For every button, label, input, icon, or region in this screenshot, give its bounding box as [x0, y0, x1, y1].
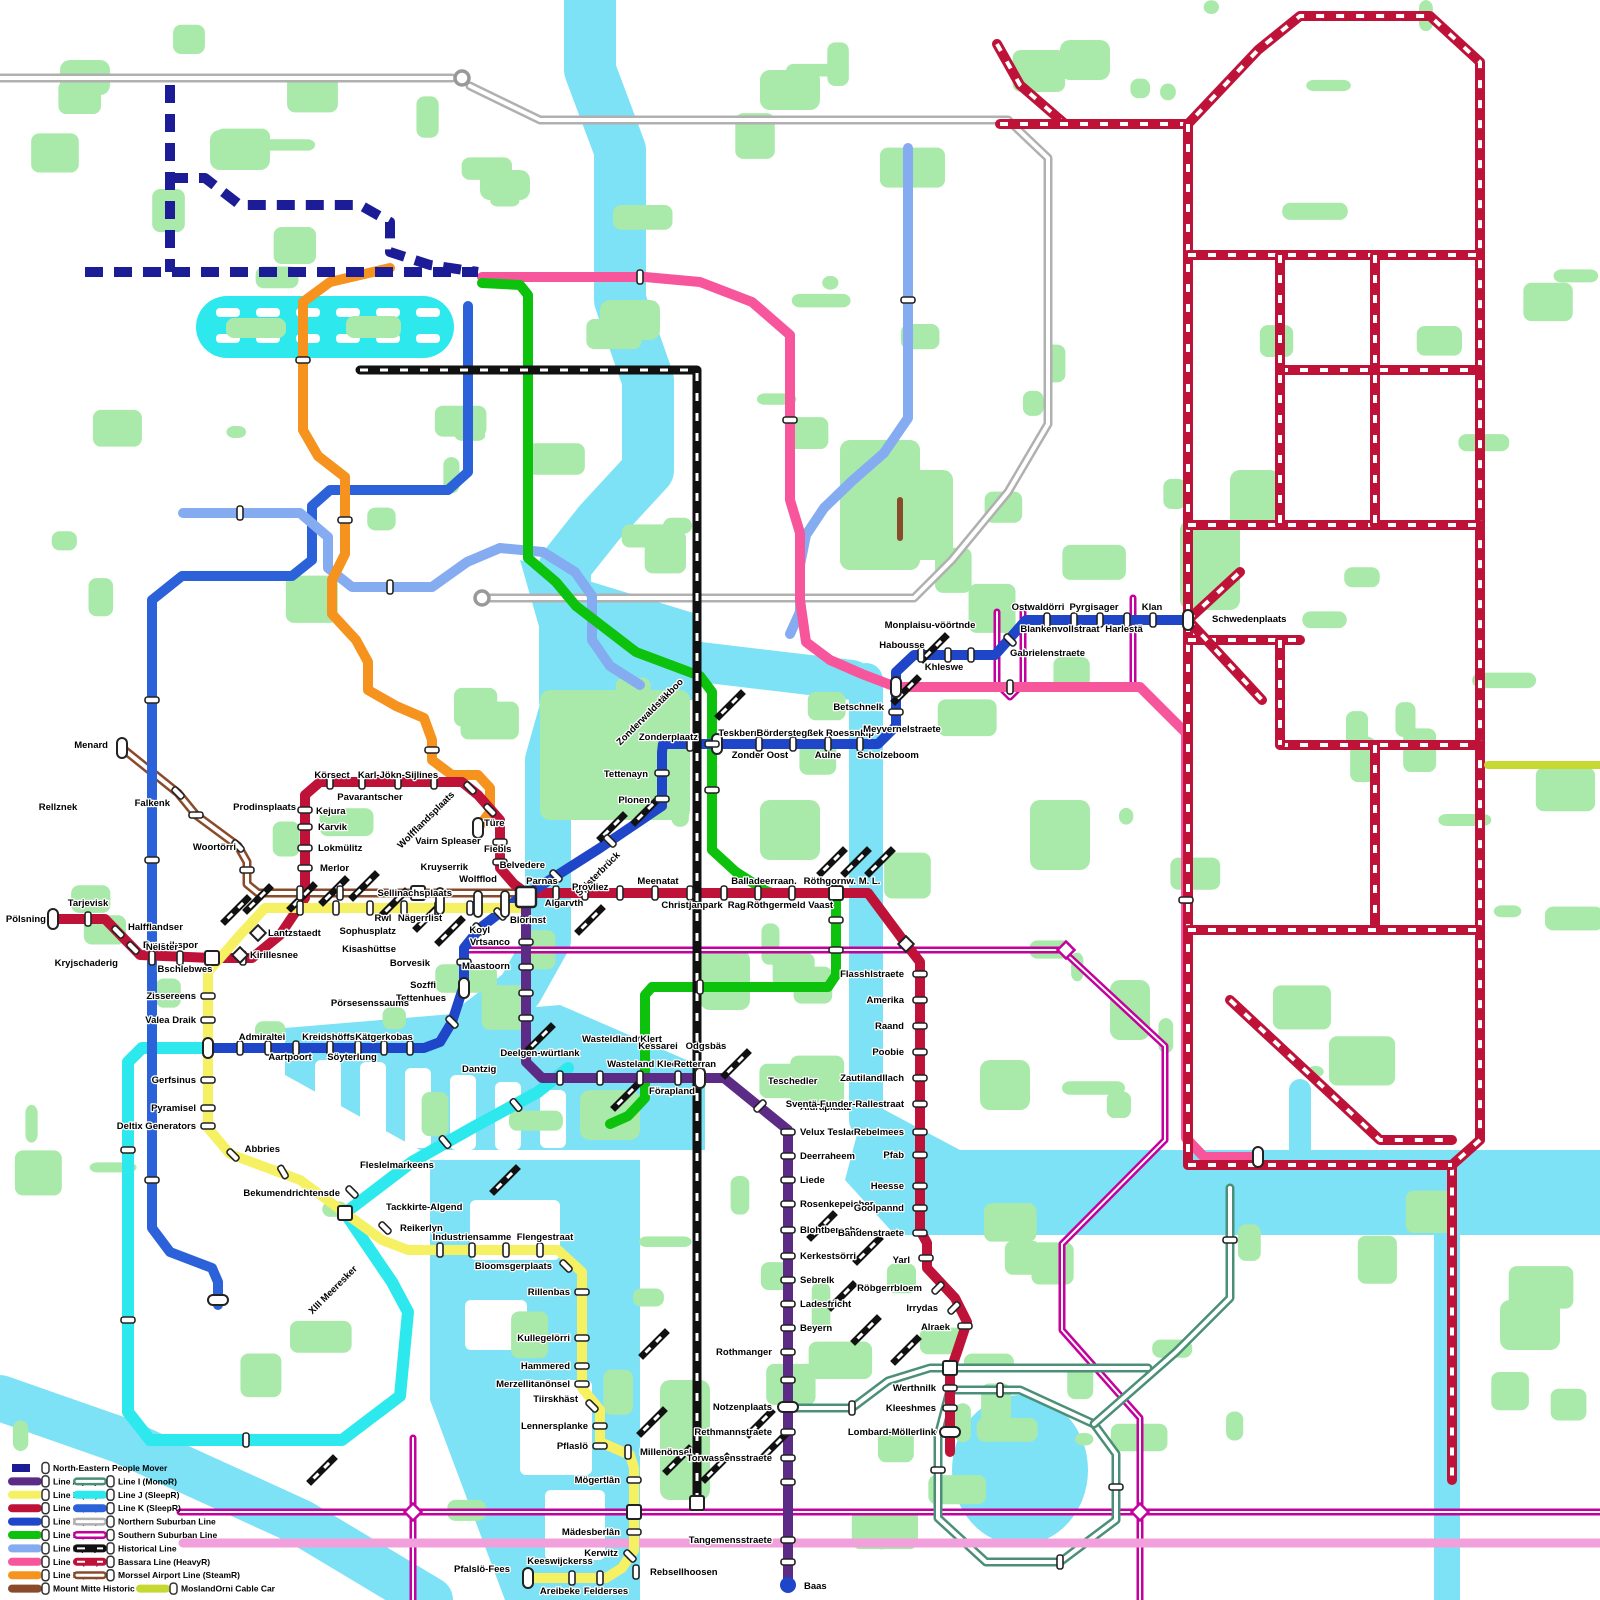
station-marker[interactable]: [943, 1361, 957, 1375]
station-label: Odgsbäs: [686, 1041, 727, 1052]
park: [1130, 79, 1150, 99]
station-marker[interactable]: [208, 1295, 228, 1305]
station-label: Betschnelk: [833, 702, 884, 713]
park: [173, 25, 205, 54]
station-label: Pfab: [883, 1150, 904, 1161]
station-marker[interactable]: [781, 1377, 795, 1383]
station-marker[interactable]: [943, 1385, 957, 1391]
station-label: Börderstegßek: [756, 728, 824, 739]
station-marker[interactable]: [781, 1537, 795, 1543]
station-marker[interactable]: [469, 1243, 475, 1257]
station-marker[interactable]: [145, 1177, 159, 1183]
station-marker[interactable]: [1057, 1555, 1063, 1569]
station-label: Heesse: [871, 1181, 904, 1192]
legend-item: Line K (SleepR): [77, 1503, 181, 1514]
station-marker[interactable]: [781, 1177, 795, 1183]
station-marker[interactable]: [337, 886, 343, 900]
station-marker[interactable]: [891, 677, 901, 697]
station-marker[interactable]: [637, 270, 643, 284]
station-marker[interactable]: [338, 517, 352, 523]
station-marker[interactable]: [203, 1038, 213, 1058]
station-marker[interactable]: [627, 1529, 641, 1535]
station-label: Menard: [74, 740, 108, 751]
station-marker[interactable]: [467, 901, 473, 915]
station-marker[interactable]: [958, 1323, 972, 1329]
station-marker[interactable]: [675, 1071, 681, 1085]
station-marker[interactable]: [501, 891, 509, 917]
station-label: Rothmanger: [716, 1347, 772, 1358]
station-marker[interactable]: [557, 1071, 563, 1085]
station-label: Zonderplaatz: [639, 732, 698, 743]
station-marker[interactable]: [298, 845, 312, 851]
station-marker[interactable]: [780, 1577, 796, 1593]
station-marker[interactable]: [297, 886, 303, 900]
station-label: Lokmülitz: [318, 843, 363, 854]
park: [1551, 1389, 1587, 1421]
station-marker[interactable]: [205, 951, 219, 965]
station-marker[interactable]: [913, 997, 927, 1003]
station-marker[interactable]: [617, 886, 623, 900]
station-marker[interactable]: [407, 1041, 413, 1055]
station-marker[interactable]: [338, 1206, 352, 1220]
station-marker[interactable]: [201, 1077, 215, 1083]
station-marker[interactable]: [523, 1568, 533, 1588]
station-marker[interactable]: [687, 886, 693, 900]
station-label: Tettenayn: [604, 769, 648, 780]
station-marker[interactable]: [149, 951, 155, 965]
station-label: Kryjschaderig: [55, 958, 119, 969]
station-marker[interactable]: [201, 1017, 215, 1023]
station-marker[interactable]: [145, 697, 159, 703]
legend-label: Bassara Line (HeavyR): [118, 1557, 210, 1567]
station-marker[interactable]: [503, 1243, 509, 1257]
station-marker[interactable]: [1223, 1237, 1237, 1243]
legend-item: Morssel Airport Line (SteamR): [77, 1570, 240, 1581]
legend-station-icon: [42, 1583, 49, 1594]
station-marker[interactable]: [455, 71, 469, 85]
station-marker[interactable]: [1109, 1484, 1123, 1490]
station-marker[interactable]: [781, 1325, 795, 1331]
park: [527, 443, 585, 474]
station-marker[interactable]: [781, 1479, 795, 1485]
station-label: Mädesberlân: [562, 1527, 620, 1538]
legend-label: Line J (SleepR): [118, 1490, 180, 1500]
station-label: Felderses: [584, 1586, 628, 1597]
station-marker[interactable]: [829, 947, 843, 953]
station-label: Deerraheem: [800, 1151, 855, 1162]
station-marker[interactable]: [1179, 897, 1193, 903]
station-marker[interactable]: [781, 1429, 795, 1435]
station-label: Kruyserrik: [420, 862, 468, 873]
park: [1238, 1224, 1261, 1261]
station-marker[interactable]: [625, 1445, 631, 1459]
station-label: Röthgornw. M. L.: [804, 876, 881, 887]
station-marker[interactable]: [85, 912, 91, 926]
station-marker[interactable]: [575, 1363, 589, 1369]
park: [786, 64, 835, 77]
station-marker[interactable]: [575, 1335, 589, 1341]
station-label: Christjanpark: [661, 900, 723, 911]
station-label: Abbries: [245, 1144, 280, 1155]
station-marker[interactable]: [889, 709, 903, 715]
station-marker[interactable]: [913, 1049, 927, 1055]
station-marker[interactable]: [781, 1349, 795, 1355]
park: [1005, 1241, 1041, 1275]
legend-station-icon: [42, 1489, 49, 1500]
station-label: Klan: [1142, 602, 1163, 613]
park: [613, 205, 673, 230]
station-marker[interactable]: [519, 964, 533, 970]
station-label: Woortörri: [193, 842, 236, 853]
station-label: Kullegelörri: [517, 1333, 570, 1344]
station-label: Deelgen-würtlank: [500, 1048, 580, 1059]
station-marker[interactable]: [240, 867, 254, 873]
station-label: Ladesfricht: [800, 1299, 852, 1310]
station-marker[interactable]: [1150, 613, 1156, 627]
station-marker[interactable]: [968, 648, 974, 662]
station-marker[interactable]: [48, 909, 58, 929]
station-label: Millenönsel: [640, 1447, 692, 1458]
yard-track-gap: [416, 308, 440, 317]
station-label: Bandenstraete: [838, 1228, 904, 1239]
station-label: Fiebls: [484, 844, 511, 855]
station-marker[interactable]: [781, 1277, 795, 1283]
station-marker[interactable]: [237, 1041, 243, 1055]
station-marker[interactable]: [1007, 680, 1013, 694]
station-marker[interactable]: [381, 1041, 387, 1055]
station-label: Tarjevisk: [68, 898, 109, 909]
station-marker[interactable]: [756, 737, 762, 751]
station-label: Bloomsgerplaats: [475, 1261, 552, 1272]
station-label: Meenatat: [637, 876, 679, 887]
station-label: Kerkestsörri: [800, 1251, 856, 1262]
station-label: Lombard-Möllerlink: [848, 1427, 937, 1438]
station-marker[interactable]: [117, 738, 127, 758]
park: [89, 578, 114, 616]
station-marker[interactable]: [913, 1205, 927, 1211]
station-marker[interactable]: [781, 1153, 795, 1159]
station-label: Kirillesnee: [250, 950, 298, 961]
park: [31, 133, 79, 172]
station-marker[interactable]: [437, 1243, 443, 1257]
station-marker[interactable]: [695, 1068, 705, 1088]
station-label: Rellznek: [39, 802, 78, 813]
station-label: Rebelmees: [854, 1127, 904, 1138]
park: [1226, 1411, 1243, 1440]
park: [969, 584, 1016, 633]
park: [639, 1236, 692, 1247]
legend-label: MoslandOrni Cable Car: [181, 1584, 276, 1594]
station-marker[interactable]: [655, 770, 669, 776]
legend-station-icon: [42, 1530, 49, 1541]
park: [1406, 1191, 1454, 1233]
park: [671, 784, 688, 827]
station-marker[interactable]: [857, 737, 863, 751]
station-marker[interactable]: [755, 886, 761, 900]
station-marker[interactable]: [387, 580, 393, 594]
station-marker[interactable]: [237, 506, 243, 520]
park: [1523, 283, 1572, 321]
station-marker[interactable]: [627, 1505, 641, 1519]
station-marker[interactable]: [575, 1381, 589, 1387]
station-marker[interactable]: [296, 357, 310, 363]
park: [731, 1176, 750, 1215]
station-marker[interactable]: [913, 971, 927, 977]
park: [884, 853, 931, 899]
station-marker[interactable]: [593, 1443, 607, 1449]
station-marker[interactable]: [474, 891, 482, 917]
station-marker[interactable]: [849, 1401, 855, 1415]
station-marker[interactable]: [919, 1255, 933, 1261]
station-marker[interactable]: [943, 1405, 957, 1411]
station-label: Gerfsinus: [152, 1075, 196, 1086]
station-marker[interactable]: [721, 886, 727, 900]
station-marker[interactable]: [1253, 1147, 1263, 1167]
station-marker[interactable]: [913, 1183, 927, 1189]
park: [1273, 985, 1331, 1029]
park: [1491, 1372, 1529, 1410]
station-label: Karl-Jökn-Sijlines: [358, 770, 438, 781]
station-marker[interactable]: [931, 1467, 945, 1473]
station-marker[interactable]: [145, 857, 159, 863]
station-marker[interactable]: [298, 865, 312, 871]
station-label: Monplaisu-vöörtnde: [885, 620, 976, 631]
station-label: Förapland: [649, 1086, 695, 1097]
station-label: Halfflandser: [128, 922, 183, 933]
pier: [360, 1062, 386, 1142]
legend-station-icon: [42, 1503, 49, 1514]
station-marker[interactable]: [333, 901, 339, 915]
station-marker[interactable]: [189, 812, 203, 818]
station-marker[interactable]: [177, 951, 183, 965]
park: [1536, 768, 1595, 812]
legend-item: MoslandOrni Cable Car: [140, 1583, 276, 1594]
station-marker[interactable]: [778, 1402, 798, 1412]
station-label: Scholzeboom: [857, 750, 919, 761]
station-label: Körsect: [314, 770, 350, 781]
park: [367, 508, 395, 531]
park: [1204, 0, 1219, 14]
station-label: Bekumendrichtensde: [243, 1188, 340, 1199]
park: [586, 319, 641, 349]
legend-item: Historical Line: [77, 1543, 177, 1554]
station-marker[interactable]: [781, 1253, 795, 1259]
station-marker[interactable]: [519, 1015, 533, 1021]
park: [827, 42, 849, 86]
station-marker[interactable]: [201, 993, 215, 999]
station-label: Zonder Oost: [732, 750, 789, 761]
park: [226, 426, 246, 438]
pier: [315, 1060, 341, 1140]
station-marker[interactable]: [705, 741, 719, 747]
station-label: Prodinsplaats: [233, 802, 296, 813]
station-label: Sophusplatz: [340, 926, 397, 937]
legend-item: Northern Suburban Line: [77, 1516, 216, 1527]
station-label: Zautilandllach: [840, 1073, 904, 1084]
station-marker[interactable]: [825, 737, 831, 751]
park: [633, 1289, 664, 1307]
station-marker[interactable]: [781, 1455, 795, 1461]
station-marker[interactable]: [913, 1101, 927, 1107]
station-label: Wolfflod: [459, 874, 497, 885]
park: [760, 800, 820, 860]
park: [1494, 905, 1522, 917]
station-marker[interactable]: [121, 1317, 135, 1323]
station-label: Bschlebwes: [158, 964, 213, 975]
station-marker[interactable]: [201, 1123, 215, 1129]
park: [273, 821, 300, 856]
park: [603, 1370, 632, 1415]
park: [1170, 858, 1220, 890]
station-marker[interactable]: [637, 1071, 643, 1085]
station-label: Torwassensstraete: [687, 1453, 772, 1464]
park: [13, 1420, 28, 1451]
station-label: Kisashüttse: [342, 944, 396, 955]
station-label: Provliez: [572, 882, 609, 893]
station-marker[interactable]: [475, 591, 489, 605]
station-label: Maastoorn: [462, 961, 510, 972]
station-marker[interactable]: [781, 1559, 795, 1565]
station-marker[interactable]: [367, 901, 373, 915]
station-label: Kessarei: [638, 1041, 678, 1052]
station-label: Retterran: [674, 1059, 716, 1070]
park: [822, 276, 838, 290]
station-label: Pörsesenssaums: [331, 998, 409, 1009]
station-label: Keeswijckerss: [527, 1556, 593, 1567]
station-marker[interactable]: [473, 818, 483, 838]
station-label: Pfalslö-Fees: [454, 1564, 510, 1575]
legend-station-icon: [42, 1543, 49, 1554]
station-label: Meyvernelstraete: [863, 724, 941, 735]
station-marker[interactable]: [901, 297, 915, 303]
station-label: Industriensamme: [433, 1232, 512, 1243]
station-marker[interactable]: [201, 1105, 215, 1111]
station-marker[interactable]: [789, 886, 795, 900]
station-marker[interactable]: [1183, 610, 1193, 630]
park: [1119, 808, 1133, 825]
station-marker[interactable]: [997, 1383, 1003, 1397]
park: [226, 318, 286, 338]
station-label: Goolpannd: [854, 1203, 904, 1214]
station-label: Lennersplanke: [521, 1421, 588, 1432]
station-marker[interactable]: [593, 1423, 607, 1429]
transit-map: PölsningTarjeviskHalfflandserBeverikspor…: [0, 0, 1600, 1600]
station-label: Irrydas: [906, 1303, 938, 1314]
park: [809, 1342, 872, 1379]
legend-station-icon: [42, 1476, 49, 1487]
station-marker[interactable]: [945, 648, 951, 662]
park: [462, 157, 512, 180]
station-label: Algarvth: [545, 898, 584, 909]
yard-track-gap: [416, 334, 440, 343]
park: [984, 1203, 1037, 1242]
park: [645, 530, 686, 573]
station-marker[interactable]: [575, 1289, 589, 1295]
station-label: Nelster: [146, 942, 179, 953]
station-label: Karvik: [318, 822, 348, 833]
park: [1160, 84, 1176, 101]
station-label: Alraek: [921, 1322, 951, 1333]
station-label: Khleswe: [925, 662, 964, 673]
station-marker[interactable]: [781, 1201, 795, 1207]
station-label: Gabrielenstraete: [1010, 648, 1085, 659]
station-marker[interactable]: [243, 1433, 249, 1447]
station-label: Pyramisel: [151, 1103, 196, 1114]
station-marker[interactable]: [597, 1071, 603, 1085]
station-marker[interactable]: [459, 978, 469, 998]
station-marker[interactable]: [597, 1571, 603, 1585]
station-marker[interactable]: [705, 787, 719, 793]
station-marker[interactable]: [913, 1023, 927, 1029]
transit-map-stage: PölsningTarjeviskHalfflandserBeverikspor…: [0, 0, 1600, 1600]
station-marker[interactable]: [697, 980, 703, 994]
station-marker[interactable]: [913, 1129, 927, 1135]
station-label: Schwedenplaats: [1212, 614, 1286, 625]
station-marker[interactable]: [690, 1496, 704, 1510]
station-label: Rebsellhoosen: [650, 1567, 718, 1578]
station-marker[interactable]: [783, 417, 797, 423]
station-label: Amerika: [867, 995, 905, 1006]
station-marker[interactable]: [425, 747, 439, 753]
legend-item: Line J (SleepR): [77, 1489, 180, 1500]
station-label: Poobie: [872, 1047, 904, 1058]
station-marker[interactable]: [655, 796, 669, 802]
legend-label: Morssel Airport Line (SteamR): [118, 1570, 240, 1580]
station-marker[interactable]: [829, 917, 843, 923]
station-label: Kejura: [316, 806, 346, 817]
station-marker[interactable]: [298, 807, 312, 813]
station-marker[interactable]: [652, 886, 658, 900]
station-marker[interactable]: [627, 1477, 641, 1483]
station-marker[interactable]: [297, 901, 303, 915]
station-label: Dantzig: [462, 1064, 497, 1075]
station-marker[interactable]: [633, 1565, 639, 1579]
yard-track-gap: [376, 308, 400, 317]
legend-station-icon: [42, 1570, 49, 1581]
legend-label: Line K (SleepR): [118, 1503, 181, 1513]
station-marker[interactable]: [781, 1129, 795, 1135]
station-marker[interactable]: [121, 1147, 135, 1153]
station-label: Nägerrlist: [398, 913, 443, 924]
station-marker[interactable]: [516, 887, 536, 907]
park: [382, 1007, 406, 1029]
station-label: Aulne: [815, 750, 841, 761]
park: [980, 1060, 1030, 1110]
legend-station-icon: [107, 1516, 114, 1527]
station-marker[interactable]: [781, 1301, 795, 1307]
station-label: Valea Draik: [145, 1015, 196, 1026]
station-marker[interactable]: [519, 990, 533, 996]
station-marker[interactable]: [940, 1427, 960, 1437]
station-label: Pyrgisager: [1069, 602, 1118, 613]
station-marker[interactable]: [790, 737, 796, 751]
station-label: Habousse: [879, 640, 924, 651]
station-marker[interactable]: [913, 1152, 927, 1158]
station-marker[interactable]: [913, 1075, 927, 1081]
legend-station-icon: [170, 1583, 177, 1594]
station-marker[interactable]: [519, 939, 533, 945]
station-marker[interactable]: [537, 1243, 543, 1257]
station-label: Notzenplaats: [713, 1402, 772, 1413]
station-marker[interactable]: [913, 1230, 927, 1236]
station-marker[interactable]: [298, 824, 312, 830]
station-marker[interactable]: [569, 1571, 575, 1585]
legend-station-icon: [107, 1476, 114, 1487]
station-marker[interactable]: [829, 886, 843, 900]
station-label: Plonen: [618, 795, 650, 806]
station-label: Blorinst: [510, 915, 547, 926]
station-marker[interactable]: [781, 1227, 795, 1233]
